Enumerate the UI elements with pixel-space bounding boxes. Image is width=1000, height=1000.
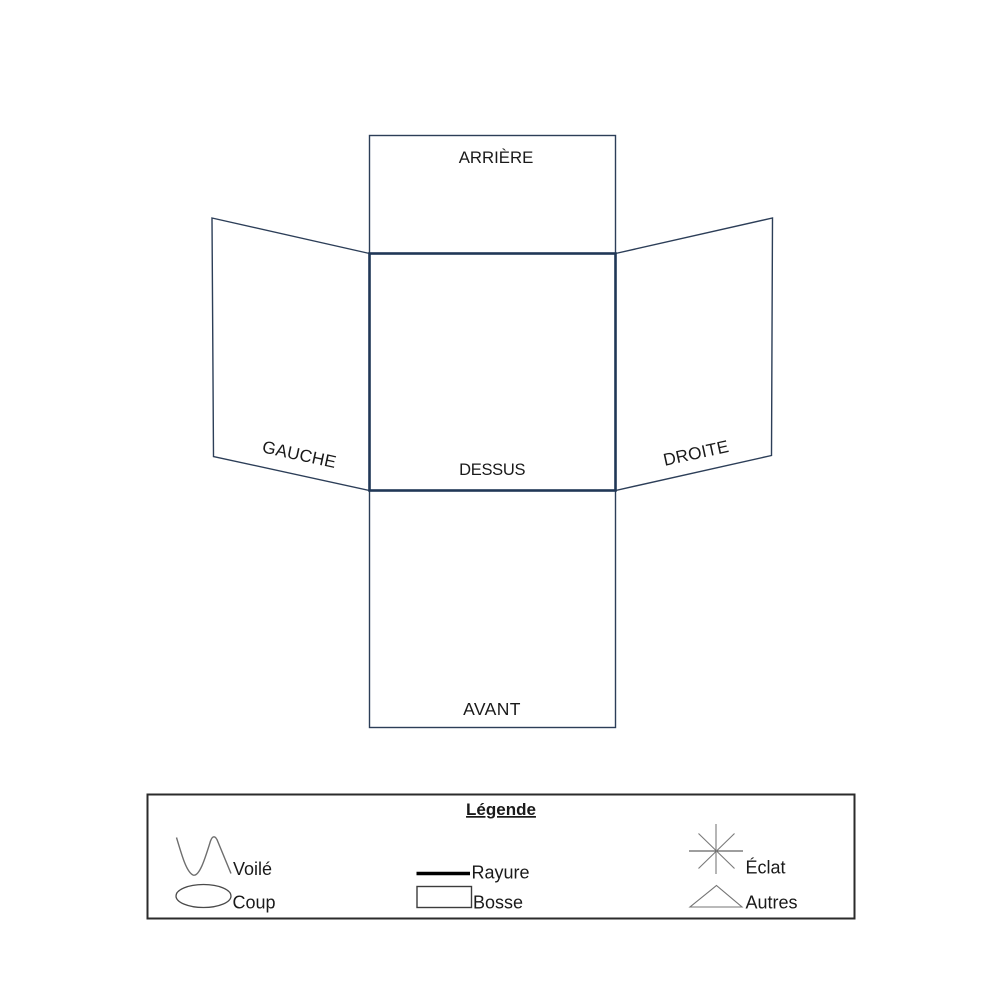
svg-text:Rayure: Rayure — [472, 863, 530, 883]
svg-text:ARRIÈRE: ARRIÈRE — [459, 148, 534, 167]
svg-text:DROITE: DROITE — [661, 436, 730, 470]
svg-text:Voilé: Voilé — [233, 859, 272, 879]
svg-text:DESSUS: DESSUS — [459, 461, 525, 479]
svg-text:Légende: Légende — [466, 800, 536, 819]
svg-text:Éclat: Éclat — [746, 858, 786, 878]
svg-text:Autres: Autres — [746, 893, 798, 913]
svg-text:Bosse: Bosse — [473, 893, 523, 913]
svg-text:Coup: Coup — [233, 893, 276, 913]
svg-text:AVANT: AVANT — [463, 699, 521, 719]
svg-text:GAUCHE: GAUCHE — [261, 437, 339, 473]
